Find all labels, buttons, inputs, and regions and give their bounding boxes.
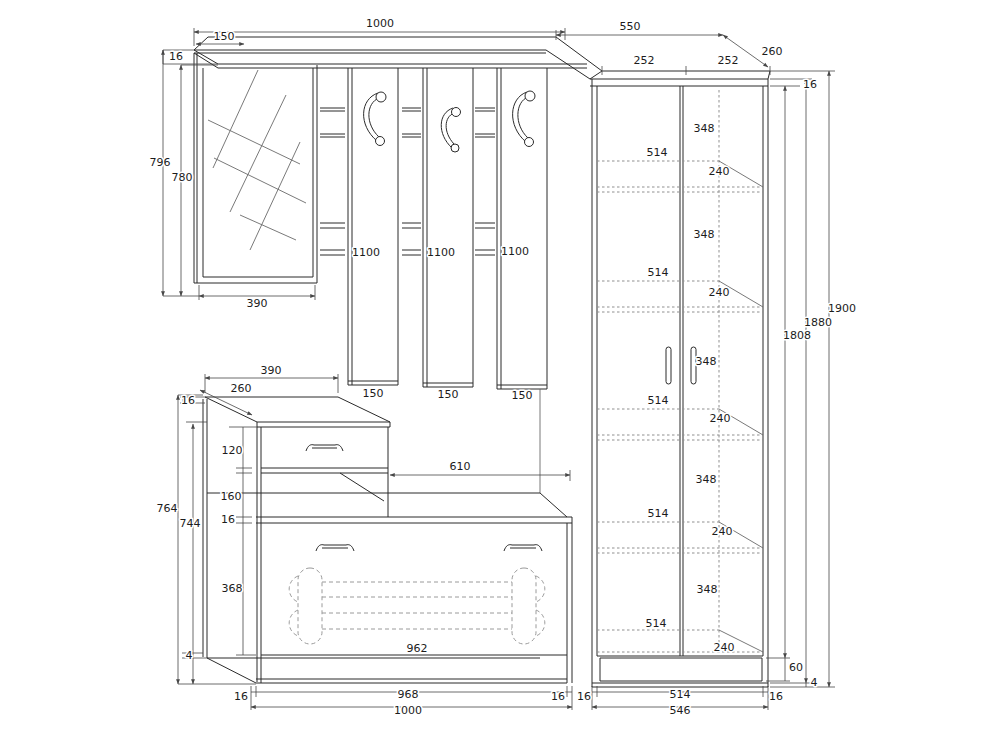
dim-bench-wall-right: 16 [551, 690, 565, 703]
dim-floor-gap-left: 4 [186, 649, 193, 662]
dim-open-height: 160 [221, 490, 242, 503]
dim-door-width-left: 252 [634, 54, 655, 67]
dim-shelf-2-depth: 240 [709, 286, 730, 299]
dim-shelf-2-width: 514 [648, 266, 669, 279]
lower-cabinet [203, 397, 390, 683]
dim-gap-2: 348 [694, 228, 715, 241]
flap-handle-icon [316, 545, 354, 551]
dim-bench-total: 1000 [394, 704, 422, 717]
bench [207, 493, 572, 683]
dim-bench-thickness: 16 [221, 513, 235, 526]
dim-panel3-height: 1100 [501, 245, 529, 258]
furniture-technical-drawing: 1000 150 16 550 260 252 252 16 796 780 3… [0, 0, 985, 738]
mirror-panel [194, 53, 317, 283]
dim-mirror-height-outer: 796 [150, 156, 171, 169]
drawing-canvas: 1000 150 16 550 260 252 252 16 796 780 3… [0, 0, 985, 738]
mirror-glass-icon [208, 70, 306, 250]
flap-handle-icon [504, 545, 542, 551]
shoe-rack-icon [289, 568, 545, 644]
dim-wardrobe-wall-right: 16 [769, 690, 783, 703]
dim-gap-5: 348 [697, 583, 718, 596]
dim-panel2-height: 1100 [427, 246, 455, 259]
dim-gap-3: 348 [696, 355, 717, 368]
dim-panel1-width: 150 [363, 387, 384, 400]
dim-height-front: 1808 [783, 329, 811, 342]
hook-panel-3 [497, 68, 547, 389]
dim-top-right-depth: 260 [762, 45, 783, 58]
dim-flap-width: 962 [407, 642, 428, 655]
dim-floor-gap-right: 4 [811, 676, 818, 689]
dim-panel3-width: 150 [512, 389, 533, 402]
dim-shelf-4-depth: 240 [712, 525, 733, 538]
dim-wardrobe-total: 546 [670, 704, 691, 717]
dim-shelf-1-depth: 240 [709, 165, 730, 178]
dim-gap-4: 348 [696, 473, 717, 486]
dim-panel2-width: 150 [438, 388, 459, 401]
dim-shelf-5-depth: 240 [714, 641, 735, 654]
dim-shelf-3-depth: 240 [710, 412, 731, 425]
dim-gap-1: 348 [694, 122, 715, 135]
dim-shelf-4-width: 514 [648, 507, 669, 520]
dim-shelf-3-width: 514 [648, 394, 669, 407]
dim-wardrobe-top-thickness: 16 [803, 78, 817, 91]
dim-top-thickness-left: 16 [169, 50, 183, 63]
coat-hook-icon [441, 108, 460, 153]
dim-mirror-height-inner: 780 [172, 171, 193, 184]
wardrobe [590, 71, 770, 687]
dim-panel1-height: 1100 [352, 246, 380, 259]
dim-wardrobe-inner: 514 [670, 688, 691, 701]
dim-bench-inner: 968 [398, 688, 419, 701]
dim-wardrobe-wall-left: 16 [577, 690, 591, 703]
dim-cabinet-top-width: 390 [261, 364, 282, 377]
hook-panel-1 [348, 68, 398, 385]
dim-cabinet-top-thickness: 16 [181, 394, 195, 407]
dim-shelf-1-width: 514 [647, 146, 668, 159]
dim-open-width: 610 [450, 460, 471, 473]
dim-top-offset: 150 [214, 30, 235, 43]
dim-cabinet-top-depth: 260 [231, 382, 252, 395]
dim-height-side: 1880 [804, 316, 832, 329]
dim-flap-height: 368 [222, 582, 243, 595]
dim-shelf-5-width: 514 [646, 617, 667, 630]
dim-mirror-width: 390 [247, 297, 268, 310]
dim-plinth-height: 60 [789, 661, 803, 674]
hook-panel-2 [423, 68, 473, 387]
dim-top-right-width: 550 [620, 20, 641, 33]
door-handle-icon [666, 347, 671, 384]
dim-height-total: 1900 [828, 302, 856, 315]
dim-top-total: 1000 [366, 17, 394, 30]
drawer [261, 427, 388, 517]
dimension-labels: 1000 150 16 550 260 252 252 16 796 780 3… [150, 17, 857, 717]
dim-door-width-right: 252 [718, 54, 739, 67]
drawer-handle-icon [306, 445, 343, 451]
coat-hook-icon [364, 92, 386, 146]
dim-side-inner: 744 [180, 517, 201, 530]
coat-hook-icon [513, 91, 535, 147]
wardrobe-doors [666, 86, 696, 656]
dim-drawer-height: 120 [222, 444, 243, 457]
wall-rails [320, 108, 495, 255]
dim-side-outer: 764 [157, 502, 178, 515]
dim-bench-wall-left: 16 [234, 690, 248, 703]
